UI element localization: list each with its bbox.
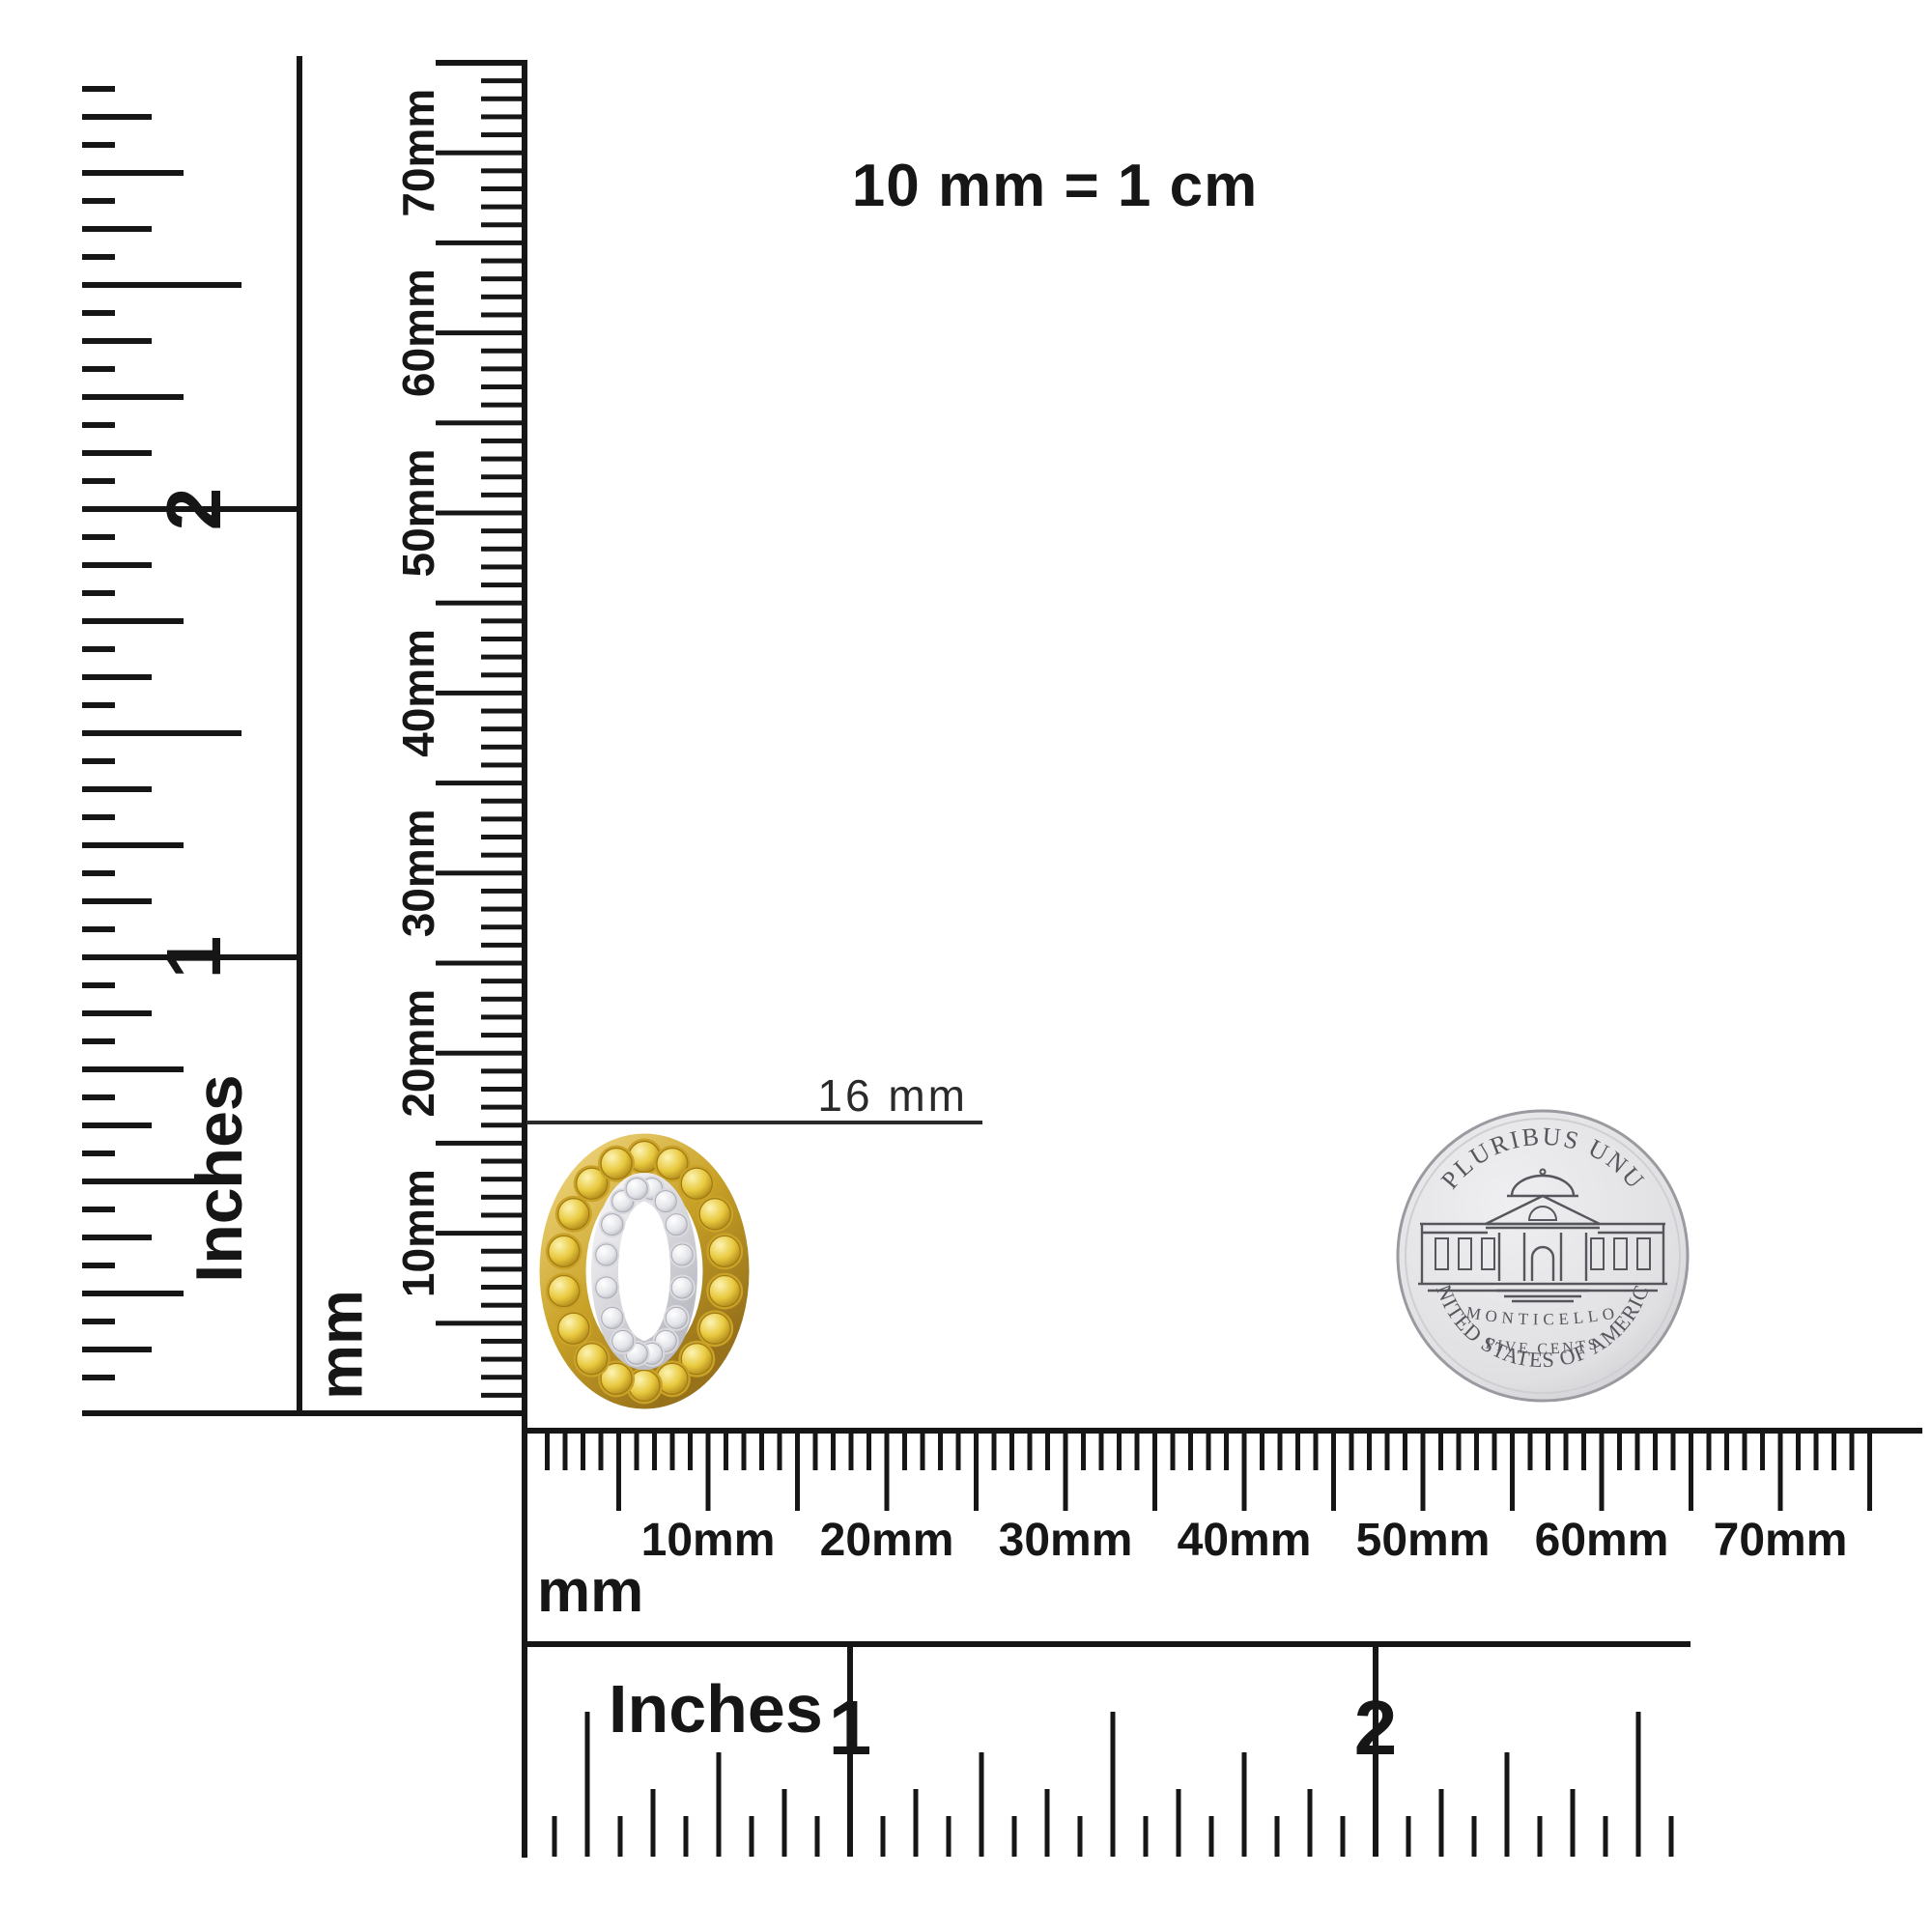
inch-tick (82, 1207, 115, 1212)
mm-tick (436, 1321, 525, 1325)
mm-tick (481, 528, 525, 533)
mm-tick (481, 907, 525, 912)
mm-tick (481, 835, 525, 839)
inch-tick (1209, 1816, 1214, 1857)
mm-tick (436, 151, 525, 156)
mm-ruler-label: 30mm (999, 1515, 1133, 1566)
inch-tick (82, 310, 115, 316)
mm-tick (1260, 1434, 1264, 1470)
inch-tick (1341, 1816, 1346, 1857)
mm-tick (1135, 1434, 1140, 1470)
mm-tick (481, 1266, 525, 1271)
mm-tick (436, 691, 525, 696)
mm-tick (956, 1434, 961, 1470)
mm-tick (1009, 1434, 1014, 1470)
mm-tick (1403, 1434, 1407, 1470)
white-diamond (602, 1307, 623, 1328)
mm-tick (436, 420, 525, 425)
mm-tick (436, 1051, 525, 1056)
mm-tick (481, 1068, 525, 1073)
mm-tick (1760, 1434, 1765, 1470)
vertical-mm-ruler: mm 10mm20mm30mm40mm50mm60mm70mm (305, 60, 527, 1858)
mm-tick (1689, 1434, 1693, 1511)
mm-tick (481, 816, 525, 821)
horizontal-mm-ruler: mm 10mm20mm30mm40mm50mm60mm70mm (525, 1428, 1922, 1625)
mm-tick (1867, 1434, 1872, 1511)
inch-tick (881, 1816, 886, 1857)
mm-tick (921, 1434, 925, 1470)
vertical-inches-ruler: 2 1 Inches (82, 56, 302, 1413)
inch-tick (980, 1752, 984, 1857)
inch-tick (1571, 1789, 1576, 1857)
inch-tick (82, 534, 115, 540)
mm-tick (1314, 1434, 1319, 1470)
mm-tick (545, 1434, 550, 1470)
mm-ruler-label: 40mm (1178, 1515, 1312, 1566)
mm-ruler-label: 70mm (1714, 1515, 1848, 1566)
mm-tick (481, 637, 525, 641)
earring-open-center (618, 1203, 670, 1340)
mm-tick (481, 655, 525, 660)
mm-tick (481, 1014, 525, 1019)
white-diamond (612, 1330, 634, 1351)
vertical-mm-top-cap (436, 60, 527, 66)
mm-tick (481, 312, 525, 317)
mm-ruler-label: 50mm (393, 449, 443, 578)
inch-tick (717, 1752, 722, 1857)
mm-tick (831, 1434, 836, 1470)
inch-tick (1636, 1712, 1641, 1857)
mm-tick (1778, 1434, 1783, 1511)
inch-tick (82, 814, 115, 820)
inch-tick (82, 338, 152, 344)
inch-tick (1472, 1816, 1477, 1857)
yellow-diamond (558, 1199, 589, 1230)
mm-tick (1242, 1434, 1247, 1511)
coin-motto: E PLURIBUS UNUM (0, 0, 1651, 1201)
inch-tick (1669, 1816, 1674, 1857)
mm-tick (481, 726, 525, 731)
inch-tick (1538, 1816, 1543, 1857)
mm-tick (481, 618, 525, 623)
mm-tick (481, 276, 525, 281)
mm-tick (436, 330, 525, 335)
mm-tick (481, 384, 525, 389)
mm-ruler-label: 20mm (820, 1515, 954, 1566)
mm-tick (481, 943, 525, 948)
inch-tick (82, 786, 152, 792)
mm-tick (938, 1434, 943, 1470)
inch-tick (750, 1816, 754, 1857)
mm-tick (481, 582, 525, 587)
mm-tick (1814, 1434, 1819, 1470)
scale-note: 10 mm = 1 cm (852, 153, 1258, 219)
inch-tick (914, 1789, 919, 1857)
inch-tick (82, 1038, 115, 1044)
inch-tick (618, 1816, 623, 1857)
mm-unit-label-bottom: mm (537, 1558, 643, 1625)
yellow-diamond (699, 1313, 730, 1344)
mm-tick (1295, 1434, 1300, 1470)
mm-tick (481, 1303, 525, 1308)
white-diamond (626, 1179, 647, 1200)
mm-tick (795, 1434, 800, 1511)
inch-tick (82, 1179, 241, 1184)
mm-tick (1600, 1434, 1605, 1511)
mm-ruler-label: 70mm (393, 89, 443, 217)
inch-tick (82, 226, 152, 232)
mm-tick (974, 1434, 979, 1511)
mm-tick (1492, 1434, 1497, 1470)
mm-tick (481, 78, 525, 83)
mm-tick (1028, 1434, 1033, 1470)
mm-tick (481, 997, 525, 1002)
inch-tick (82, 1151, 115, 1156)
inch-tick (1604, 1816, 1608, 1857)
mm-tick (635, 1434, 639, 1470)
mm-tick (1421, 1434, 1426, 1511)
inch-tick (1406, 1816, 1411, 1857)
mm-tick (481, 547, 525, 552)
mm-tick (724, 1434, 728, 1470)
inch-tick (82, 506, 299, 512)
mm-tick (885, 1434, 890, 1511)
vertical-rulers-baseline (82, 1410, 527, 1416)
mm-tick (1796, 1434, 1801, 1470)
mm-tick (481, 672, 525, 677)
mm-tick (1438, 1434, 1443, 1470)
mm-tick (481, 1285, 525, 1290)
mm-tick (1581, 1434, 1586, 1470)
inch-tick (1111, 1712, 1116, 1857)
mm-tick (742, 1434, 747, 1470)
mm-tick (481, 1105, 525, 1110)
mm-tick (481, 1339, 525, 1344)
mm-ruler-label: 60mm (1535, 1515, 1669, 1566)
mm-tick (481, 474, 525, 479)
inch-tick (847, 1647, 853, 1857)
mm-tick (481, 222, 525, 227)
mm-ruler-label: 40mm (393, 629, 443, 757)
inch-tick (82, 1375, 115, 1380)
measurement-label: 16 mm (817, 1070, 968, 1121)
white-diamond (671, 1244, 693, 1265)
inch-tick (82, 590, 115, 596)
yellow-diamond (709, 1236, 740, 1266)
mm-unit-label-left: mm (305, 1290, 375, 1400)
mm-tick (481, 745, 525, 750)
white-diamond (666, 1214, 687, 1236)
measurement-annotation: 16 mm (526, 1070, 982, 1124)
mm-tick (481, 186, 525, 191)
inch-tick (82, 254, 115, 260)
mm-tick (481, 493, 525, 497)
white-diamond (602, 1214, 623, 1236)
mm-tick (481, 979, 525, 983)
inch-tick (82, 982, 115, 988)
mm-tick (481, 205, 525, 210)
yellow-diamond (558, 1313, 589, 1344)
mm-tick (481, 1249, 525, 1254)
mm-tick (481, 1033, 525, 1037)
mm-tick (581, 1434, 585, 1470)
inch-tick (82, 1235, 152, 1240)
mm-tick (481, 1177, 525, 1181)
inch-tick (82, 1094, 115, 1100)
inch-tick (82, 478, 115, 484)
inch-tick (1275, 1816, 1280, 1857)
mm-tick (670, 1434, 675, 1470)
white-diamond (655, 1191, 676, 1212)
earring-image (546, 1139, 743, 1405)
inch-tick (1439, 1789, 1444, 1857)
mm-tick (867, 1434, 871, 1470)
inch-tick (585, 1712, 590, 1857)
size-chart-canvas: 10 mm = 1 cm 2 1 Inches mm 10mm20mm30mm4… (0, 0, 1932, 1932)
inch-tick (1242, 1752, 1247, 1857)
mm-tick (1045, 1434, 1050, 1470)
mm-tick (1171, 1434, 1176, 1470)
mm-tick (481, 1212, 525, 1217)
mm-tick (436, 1231, 525, 1236)
inch-tick (82, 758, 115, 764)
inch-tick (82, 1263, 115, 1268)
inch-tick (82, 198, 115, 204)
inch-tick (82, 142, 115, 148)
mm-ruler-label: 30mm (393, 809, 443, 937)
inch-tick (82, 1347, 152, 1352)
inch-tick (82, 1066, 184, 1072)
inch-tick (82, 1122, 152, 1128)
mm-tick (1653, 1434, 1658, 1470)
mm-ruler-label: 20mm (393, 989, 443, 1118)
vertical-mm-spine (522, 60, 527, 1858)
yellow-diamond (577, 1344, 608, 1375)
mm-tick (481, 853, 525, 858)
inch-tick (82, 702, 115, 708)
mm-tick (1635, 1434, 1640, 1470)
mm-ruler-label: 10mm (393, 1169, 443, 1297)
yellow-diamond (601, 1149, 632, 1179)
inch-tick (82, 842, 184, 848)
inch-tick (82, 898, 152, 904)
mm-tick (481, 1159, 525, 1164)
mm-tick (481, 366, 525, 371)
inch-tick (82, 1010, 152, 1016)
yellow-diamond (699, 1199, 730, 1230)
mm-tick (481, 114, 525, 119)
inch-tick (684, 1816, 689, 1857)
yellow-diamond (549, 1276, 580, 1307)
mm-tick (599, 1434, 604, 1470)
mm-tick (688, 1434, 693, 1470)
inch-tick (82, 646, 115, 652)
mm-tick (481, 295, 525, 299)
white-diamond (666, 1307, 687, 1328)
mm-tick (481, 1087, 525, 1092)
mm-tick (1081, 1434, 1086, 1470)
inch-tick (947, 1816, 952, 1857)
mm-tick (1385, 1434, 1390, 1470)
inch-tick (553, 1816, 557, 1857)
mm-tick (652, 1434, 657, 1470)
mm-tick (1743, 1434, 1747, 1470)
mm-tick (481, 259, 525, 264)
mm-tick (481, 924, 525, 929)
mm-tick (481, 709, 525, 714)
mm-tick (1671, 1434, 1676, 1470)
horizontal-inches-ruler: Inches 1 2 (525, 1641, 1690, 1857)
inch-tick (1078, 1816, 1083, 1857)
mm-tick (706, 1434, 711, 1511)
mm-tick (1850, 1434, 1855, 1470)
mm-tick (778, 1434, 782, 1470)
inch-tick (82, 926, 115, 932)
mm-tick (1546, 1434, 1550, 1470)
mm-tick (1188, 1434, 1193, 1470)
mm-tick (813, 1434, 818, 1470)
inch-tick (82, 618, 184, 624)
white-diamond (596, 1277, 617, 1298)
mm-tick (1724, 1434, 1729, 1470)
mm-tick (1350, 1434, 1354, 1470)
mm-tick (481, 1393, 525, 1398)
mm-tick (436, 1141, 525, 1146)
mm-tick (1117, 1434, 1122, 1470)
inch-tick (1373, 1647, 1378, 1857)
mm-tick (436, 961, 525, 966)
product-size-chart: 10 mm = 1 cm 2 1 Inches mm 10mm20mm30mm4… (0, 0, 1932, 1932)
vertical-inches-spine (297, 56, 302, 1413)
mm-tick (481, 349, 525, 354)
mm-tick (1331, 1434, 1336, 1511)
inch-tick (82, 730, 241, 736)
mm-tick (849, 1434, 854, 1470)
mm-ruler-label: 60mm (393, 269, 443, 397)
mm-tick (481, 1375, 525, 1379)
mm-tick (481, 799, 525, 804)
inch-tick (651, 1789, 656, 1857)
mm-tick (1528, 1434, 1533, 1470)
inch-tick (82, 870, 115, 876)
mm-tick (1224, 1434, 1229, 1470)
inch-tick (82, 366, 115, 372)
mm-ruler-label: 10mm (641, 1515, 776, 1566)
inch-tick (1045, 1789, 1050, 1857)
mm-tick (616, 1434, 621, 1511)
yellow-diamond (549, 1236, 580, 1266)
inch-tick (82, 394, 184, 400)
mm-tick (1707, 1434, 1712, 1470)
white-diamond (671, 1277, 693, 1298)
mm-tick (481, 762, 525, 767)
mm-ruler-label: 50mm (1356, 1515, 1491, 1566)
mm-tick (481, 457, 525, 462)
inch-tick (82, 422, 115, 428)
inch-tick (82, 450, 152, 456)
mm-tick (436, 870, 525, 875)
mm-tick (1064, 1434, 1068, 1511)
mm-tick (481, 97, 525, 101)
mm-tick (1510, 1434, 1515, 1511)
mm-tick (1099, 1434, 1104, 1470)
mm-tick (436, 601, 525, 606)
mm-tick (902, 1434, 907, 1470)
mm-tick (481, 1357, 525, 1362)
white-diamond (596, 1244, 617, 1265)
mm-tick (481, 564, 525, 569)
inch-tick (82, 674, 152, 680)
mm-tick (1207, 1434, 1211, 1470)
inch-tick (1177, 1789, 1181, 1857)
measurement-line (526, 1121, 982, 1124)
mm-tick (481, 132, 525, 137)
inch-tick (82, 1291, 184, 1296)
inch-tick (82, 282, 241, 288)
horizontal-inches-spine (525, 1641, 1690, 1647)
mm-tick (436, 781, 525, 785)
mm-tick (481, 889, 525, 894)
yellow-diamond (709, 1276, 740, 1307)
inch-tick (82, 170, 184, 176)
inch-tick (1144, 1816, 1149, 1857)
inch-tick (1505, 1752, 1510, 1857)
yellow-diamond (681, 1168, 712, 1199)
horizontal-mm-spine (525, 1428, 1922, 1434)
mm-tick (481, 168, 525, 173)
mm-tick (481, 403, 525, 408)
mm-tick (1564, 1434, 1569, 1470)
mm-tick (1457, 1434, 1462, 1470)
inches-unit-label-bottom: Inches (609, 1671, 823, 1747)
mm-tick (1278, 1434, 1283, 1470)
inch-tick (82, 86, 115, 92)
inch-tick (782, 1789, 787, 1857)
mm-tick (436, 511, 525, 516)
mm-tick (1152, 1434, 1157, 1511)
mm-tick (1832, 1434, 1836, 1470)
mm-tick (481, 439, 525, 443)
mm-tick (1474, 1434, 1479, 1470)
mm-tick (436, 241, 525, 245)
inch-tick (82, 114, 152, 120)
mm-tick (1617, 1434, 1622, 1470)
inch-tick (1308, 1789, 1313, 1857)
inch-tick (82, 1319, 115, 1324)
inch-tick (82, 562, 152, 568)
mm-tick (759, 1434, 764, 1470)
inch-tick (1012, 1816, 1017, 1857)
mm-tick (992, 1434, 997, 1470)
mm-tick (481, 1195, 525, 1200)
mm-tick (563, 1434, 568, 1470)
inch-tick (82, 954, 299, 960)
inch-tick (815, 1816, 820, 1857)
mm-tick (481, 1122, 525, 1127)
mm-tick (1367, 1434, 1372, 1470)
